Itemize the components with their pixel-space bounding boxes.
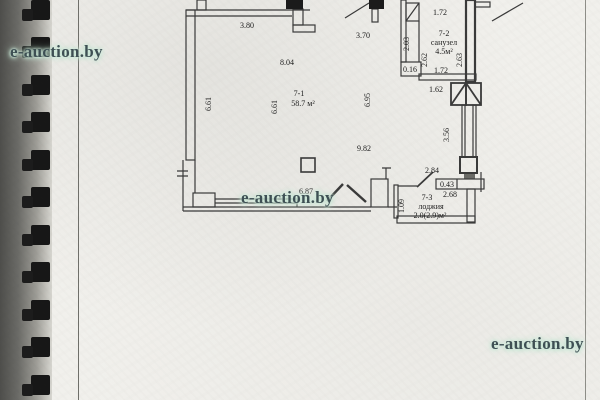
wall-loggia-right [467,189,475,222]
dim-label: 3.80 [240,21,254,30]
dim-label: 2.84 [425,166,439,175]
door-swing-entry [345,3,369,18]
room-name-label: лоджия [418,202,444,211]
dim-label: 2.62 [420,53,429,67]
watermark: e-auction.by [241,188,334,208]
vent-shaft-hatch [466,83,481,105]
room-id-label: 7-1 [294,89,305,98]
room-id-label: 7-2 [439,29,450,38]
dim-label: 3.70 [356,31,370,40]
wall-corner-pier [193,193,215,207]
dim-label: 0.16 [403,65,417,74]
room-name-label: санузел [431,38,457,47]
watermark: e-auction.by [491,334,584,354]
dim-label: 8.04 [280,58,294,67]
wall-thick-segment [286,0,303,9]
wall-top-pier-foot [293,25,315,32]
dim-label: 2.03 [402,37,411,51]
dim-label: 6.61 [204,97,213,111]
vent-shafts-pair [451,83,481,105]
shaft-box [460,157,477,173]
wall-bath-right [466,0,475,82]
wall-pier [371,179,388,207]
wall-pier-notch [382,168,397,207]
room-area-label: 4.5м² [435,47,453,56]
dim-label: 6.61 [270,100,279,114]
room-area-label: 58.7 м² [291,99,315,108]
vent-shaft-hatch [451,83,466,105]
column [301,158,315,172]
dim-label: 1.72 [433,8,447,17]
room-id-label: 7-3 [422,193,433,202]
wall-corridor [401,0,406,62]
shaft-dark-band [464,174,475,179]
room-area-label: 2.0(2.9)м² [414,211,447,220]
vent-shaft-hatch [406,3,419,21]
thick-walls [286,0,384,9]
watermark: e-auction.by [10,42,103,62]
wall-shaft-right-line [473,105,476,157]
dim-label: 3.56 [442,128,451,142]
dim-label: 1.62 [429,85,443,94]
window-top [186,10,310,16]
door-swing-top-right [492,3,523,21]
dim-label: 1.09 [397,199,406,213]
dim-label: 9.82 [357,144,371,153]
door-swing-balcony-right [347,185,366,202]
wall-top-notch [197,0,206,10]
dim-label: 2.63 [455,53,464,67]
wall-main-left [186,10,195,160]
dim-label: 2.68 [443,190,457,199]
wall-top-right-tick [475,2,490,7]
wall-thick-segment [369,0,384,9]
walls [177,0,523,223]
wall-shaft-left-line [462,105,465,157]
scanned-floorplan-page: 3.80 8.04 3.70 1.72 7-2 санузел 4.5м² 2.… [0,0,600,400]
dim-label: 6.95 [363,93,372,107]
wall-top-pier [293,9,303,25]
wall-entry-jamb [372,9,378,22]
dim-label: 0.43 [440,180,454,189]
dim-label: 1.72 [434,66,448,75]
